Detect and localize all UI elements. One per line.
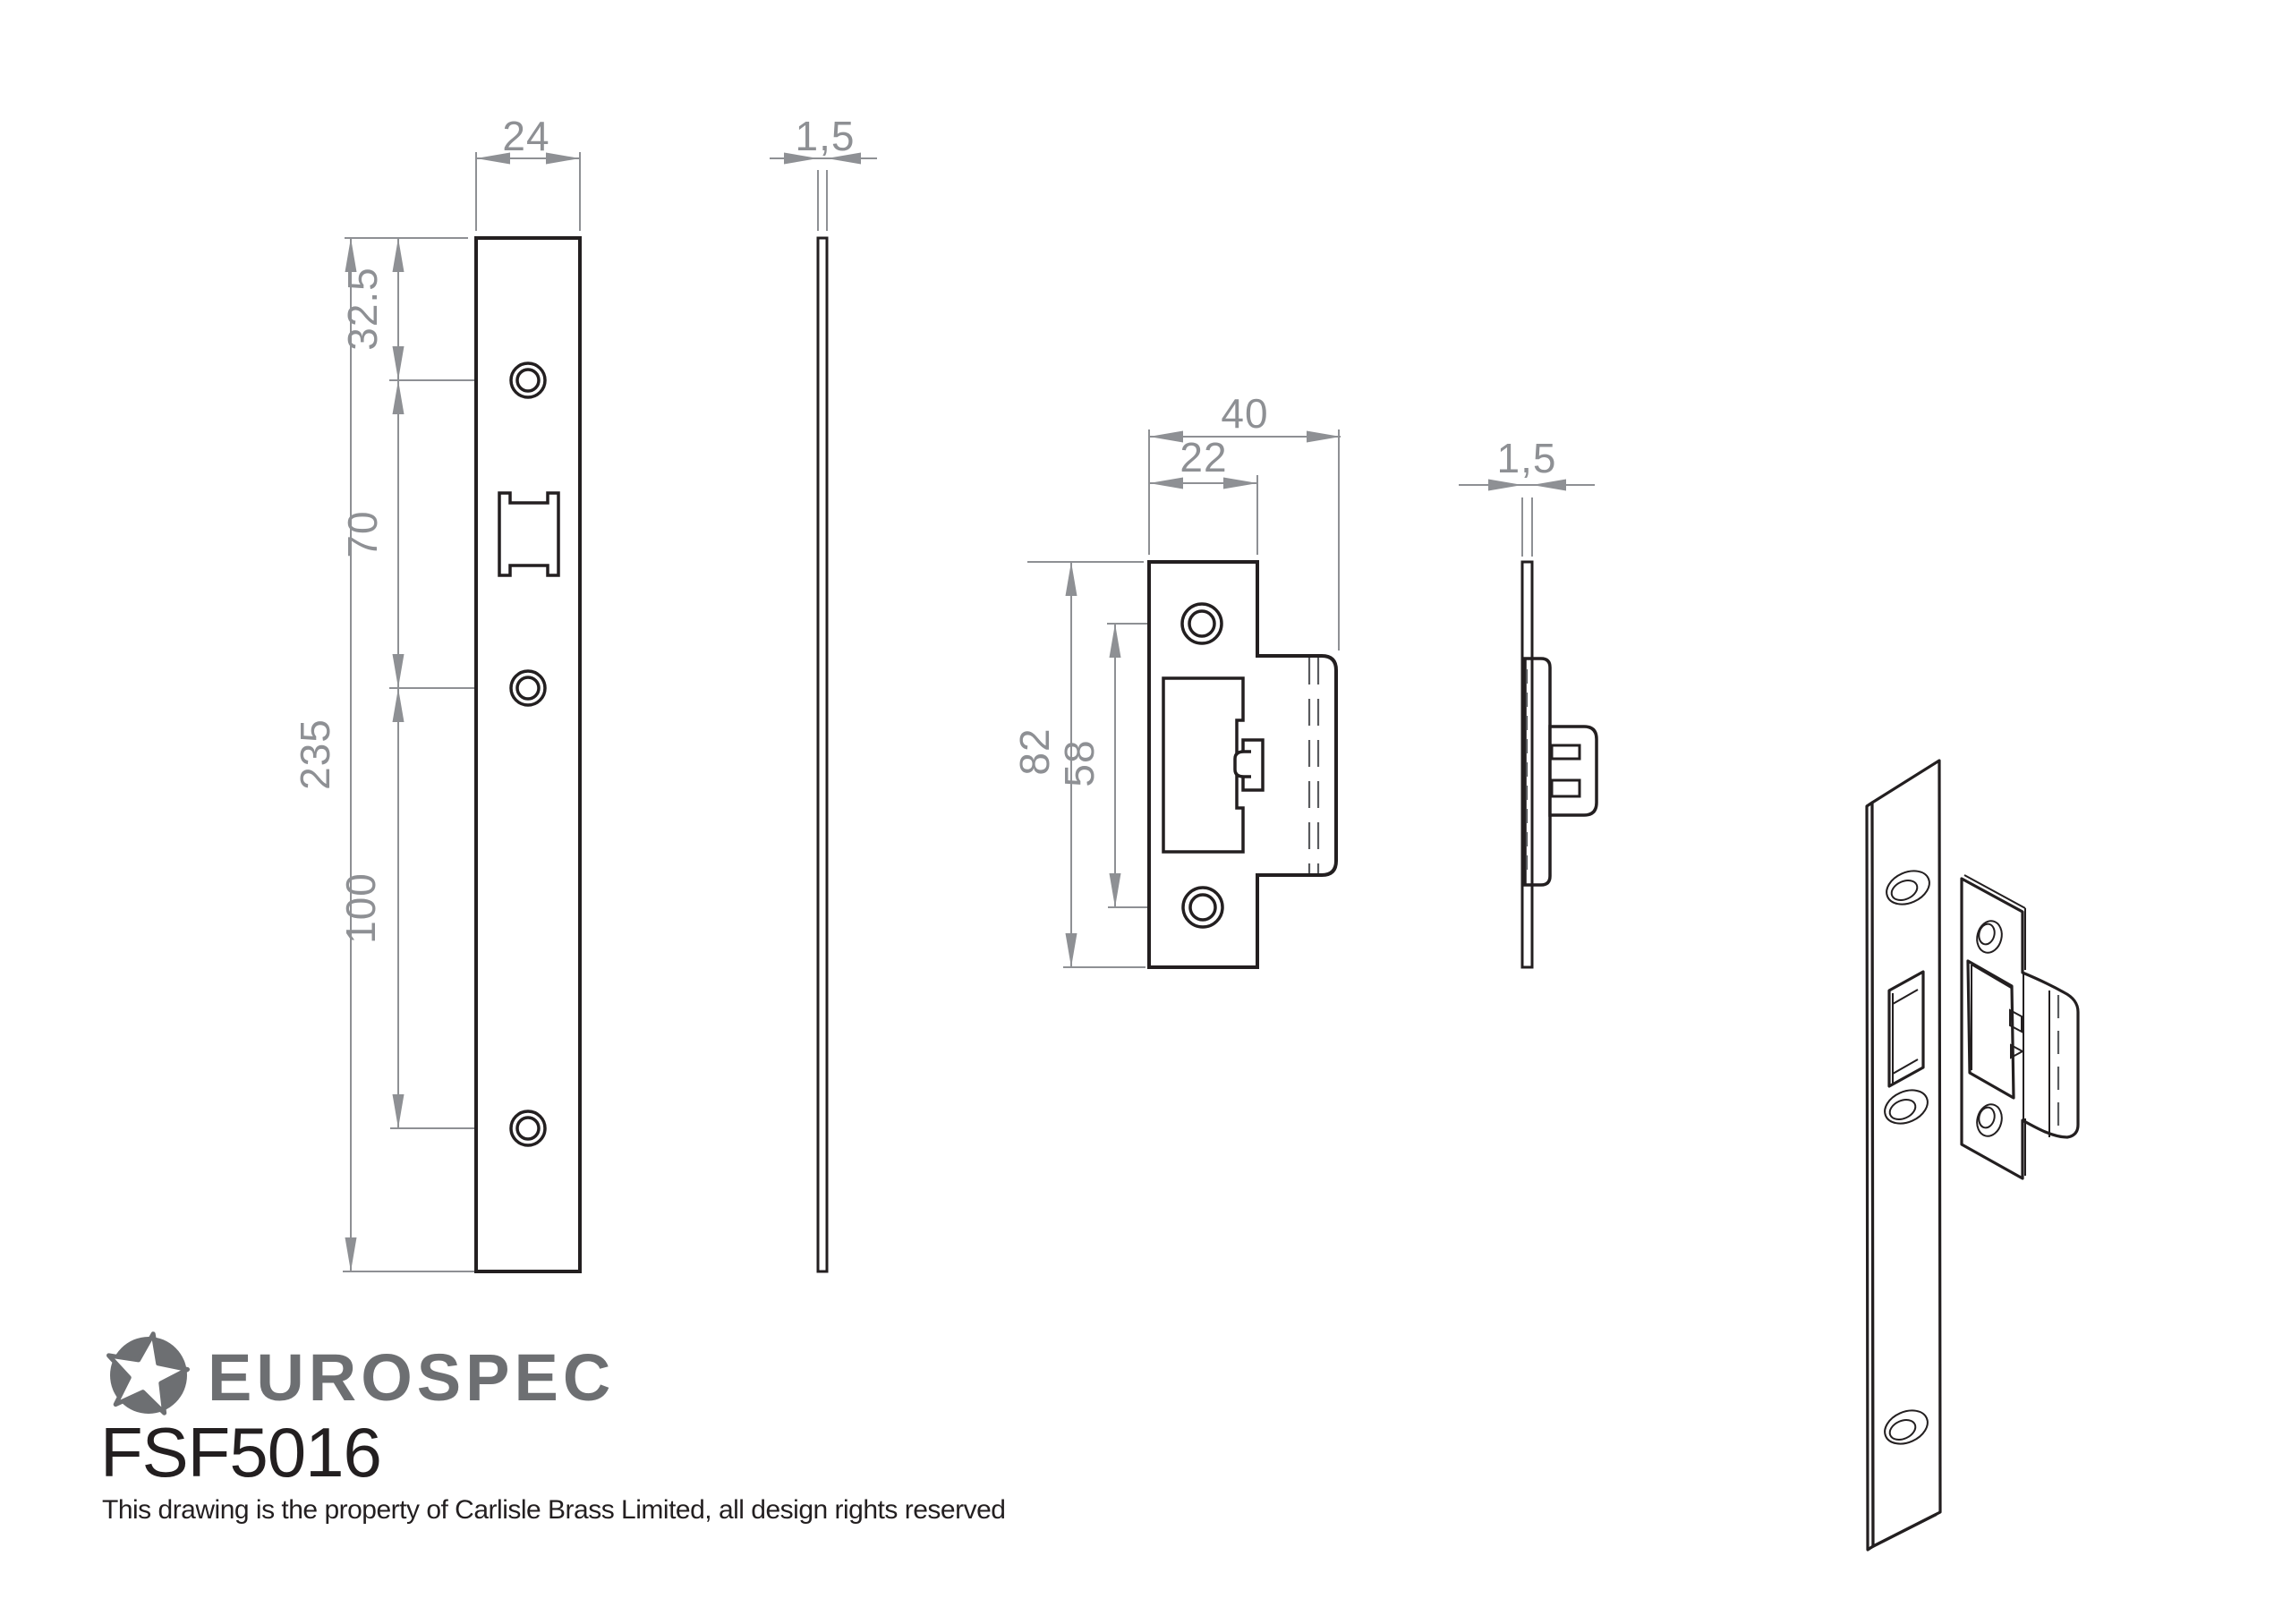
dim-forend-width: 24 [502, 113, 549, 159]
product-code: FSF5016 [100, 1413, 381, 1492]
forend-screw-hole-bottom [511, 1111, 545, 1145]
copyright-note: This drawing is the property of Carlisle… [102, 1495, 1005, 1525]
dim-strike-overall-width: 40 [1221, 390, 1268, 437]
strike-screw-hole-top [1182, 604, 1222, 643]
iso-forend-front-face [1872, 761, 1940, 1546]
technical-drawing-sheet: 24 235 32.5 70 100 1,5 [0, 0, 2291, 1624]
dim-strike-plate-width: 22 [1180, 434, 1227, 480]
strike-screw-hole-bottom [1183, 888, 1222, 927]
strike-keeper-tab [1235, 752, 1251, 777]
brand-name: EUROSPEC [208, 1340, 615, 1415]
forend-screw-hole-top [511, 363, 545, 397]
forend-screw-hole-middle [511, 671, 545, 705]
forend-latch-cutout [499, 493, 558, 575]
iso-forend-plate [1867, 761, 1940, 1550]
dim-forend-first-to-second-hole: 70 [339, 510, 386, 557]
dim-forend-second-to-third-hole: 100 [337, 872, 384, 944]
dim-strike-overall-height: 82 [1011, 727, 1058, 775]
strike-side-keeper-box [1550, 727, 1597, 815]
dim-strike-thickness: 1,5 [1497, 435, 1557, 481]
dim-strike-hole-centres: 58 [1056, 739, 1103, 786]
strike-latch-cutout [1163, 678, 1243, 852]
dim-forend-overall-height: 235 [292, 718, 338, 790]
dim-forend-top-to-first-hole: 32.5 [339, 267, 386, 351]
dim-forend-thickness: 1,5 [796, 113, 856, 159]
strike-side-housing [1525, 659, 1550, 885]
